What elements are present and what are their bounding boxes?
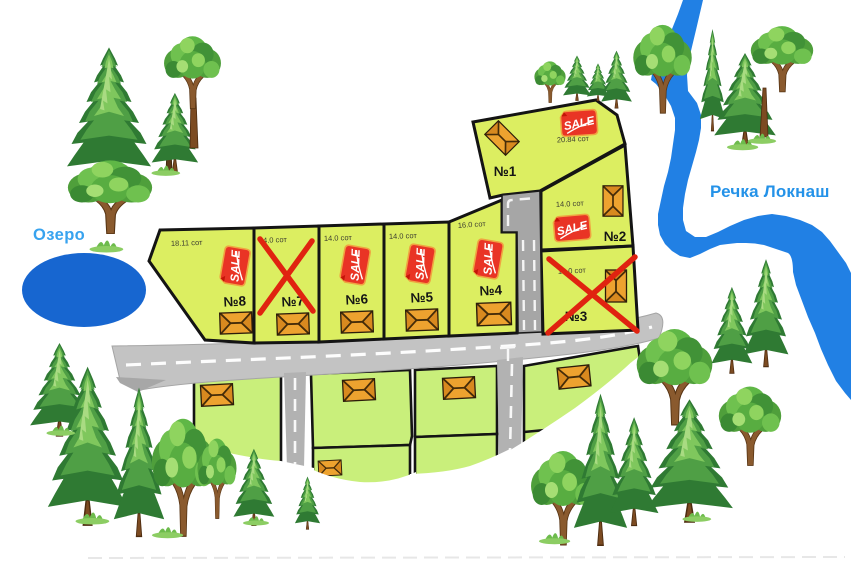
- svg-text:№8: №8: [223, 293, 247, 309]
- svg-text:№6: №6: [345, 291, 369, 307]
- svg-text:14.0 сот: 14.0 сот: [389, 231, 418, 241]
- svg-text:№2: №2: [604, 229, 627, 244]
- svg-text:14.0 сот: 14.0 сот: [556, 199, 585, 209]
- svg-text:14.0 сот: 14.0 сот: [324, 233, 353, 243]
- svg-text:Озеро: Озеро: [33, 226, 85, 244]
- svg-text:18.11 сот: 18.11 сот: [171, 238, 203, 248]
- svg-text:№4: №4: [479, 282, 503, 298]
- svg-text:№5: №5: [410, 289, 434, 305]
- svg-text:№1: №1: [494, 164, 517, 179]
- svg-text:Речка Локнаш: Речка Локнаш: [710, 182, 830, 201]
